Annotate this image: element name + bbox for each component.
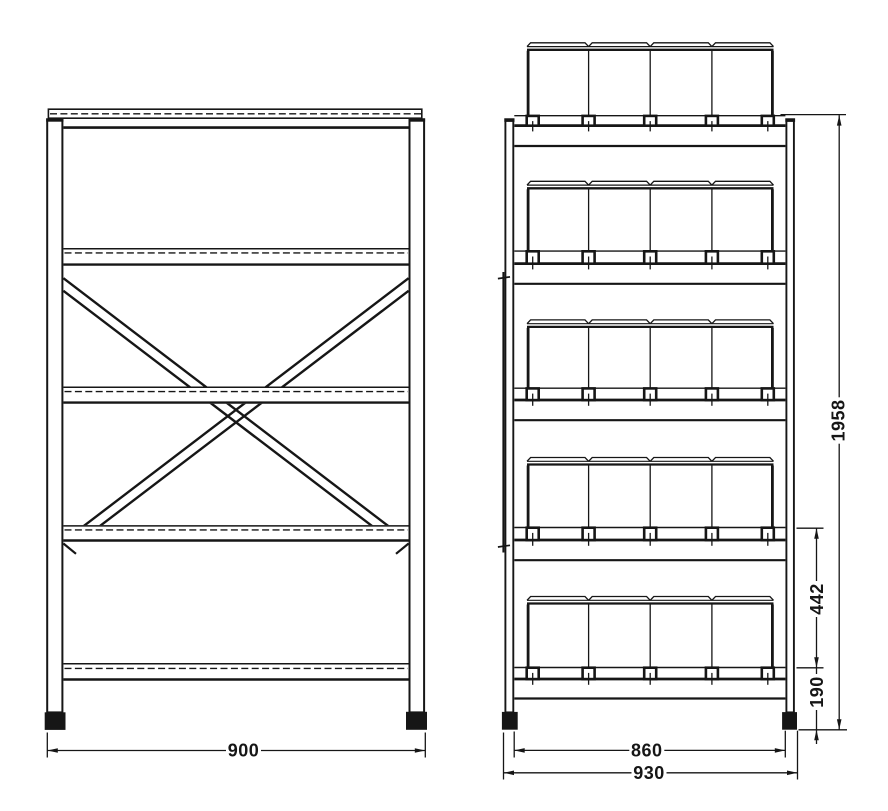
svg-text:190: 190 [807, 676, 827, 708]
svg-text:860: 860 [631, 740, 663, 760]
svg-text:930: 930 [633, 763, 665, 783]
svg-text:900: 900 [228, 741, 260, 761]
svg-text:1958: 1958 [828, 399, 848, 441]
svg-text:442: 442 [807, 583, 827, 615]
